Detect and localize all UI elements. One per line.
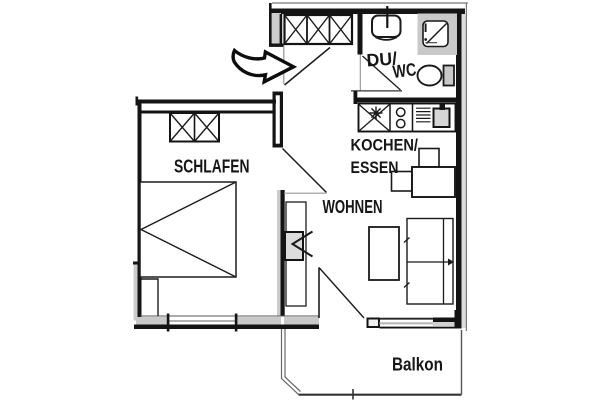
svg-text:WOHNEN: WOHNEN [323, 196, 383, 217]
svg-text:ESSEN: ESSEN [351, 158, 399, 177]
svg-text:SCHLAFEN: SCHLAFEN [174, 156, 250, 177]
svg-text:Balkon: Balkon [392, 355, 443, 375]
svg-text:WC: WC [392, 59, 418, 82]
svg-text:KOCHEN/: KOCHEN/ [351, 136, 419, 155]
